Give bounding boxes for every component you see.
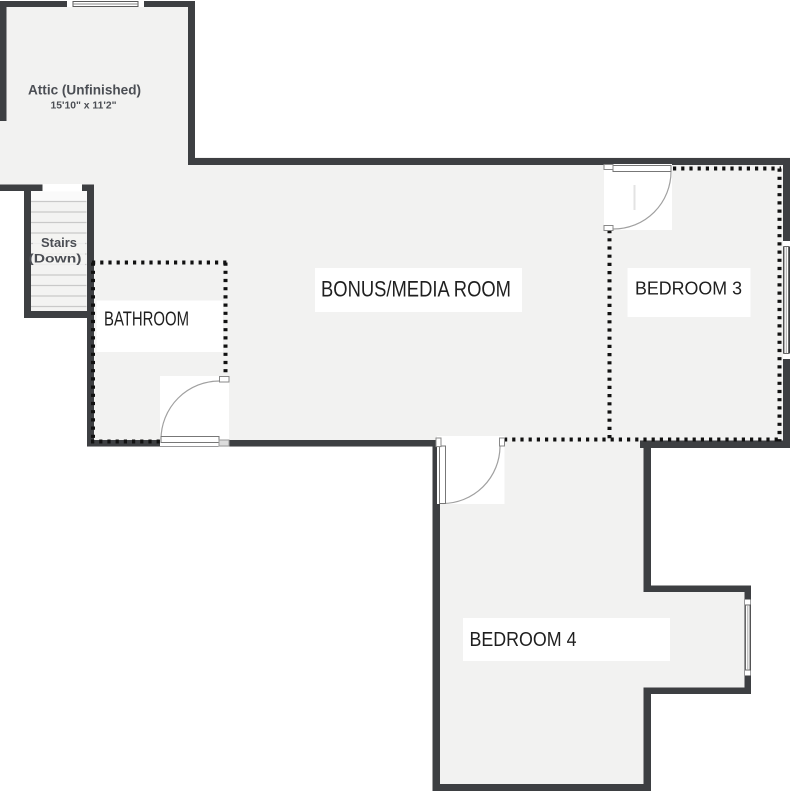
svg-text:BEDROOM 3: BEDROOM 3 [635, 278, 742, 299]
svg-text:BATHROOM: BATHROOM [104, 309, 189, 331]
svg-text:(Down): (Down) [29, 252, 82, 266]
svg-text:BEDROOM 4: BEDROOM 4 [470, 629, 577, 651]
svg-text:Attic (Unfinished): Attic (Unfinished) [28, 83, 141, 98]
svg-text:Stairs: Stairs [41, 235, 77, 250]
svg-text:BONUS/MEDIA ROOM: BONUS/MEDIA ROOM [321, 277, 511, 302]
svg-text:15'10" x 11'2": 15'10" x 11'2" [51, 100, 117, 112]
